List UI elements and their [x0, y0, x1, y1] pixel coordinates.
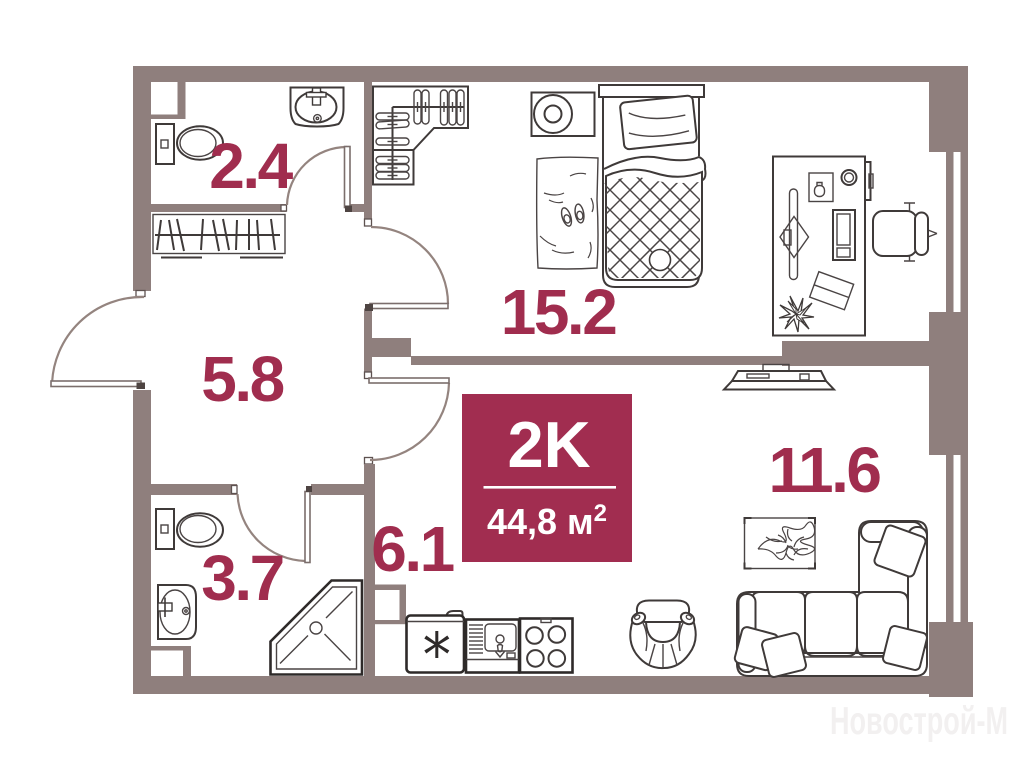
svg-text:2.4: 2.4 [209, 130, 293, 202]
svg-text:15.2: 15.2 [501, 276, 616, 348]
svg-text:3.7: 3.7 [201, 542, 282, 614]
svg-text:5.8: 5.8 [201, 343, 283, 415]
svg-text:2K: 2K [507, 408, 590, 481]
svg-text:6.1: 6.1 [371, 513, 453, 585]
svg-text:11.6: 11.6 [768, 434, 880, 506]
svg-text:Новострой-М: Новострой-М [830, 700, 1008, 743]
svg-text:44,8 м2: 44,8 м2 [487, 500, 607, 542]
